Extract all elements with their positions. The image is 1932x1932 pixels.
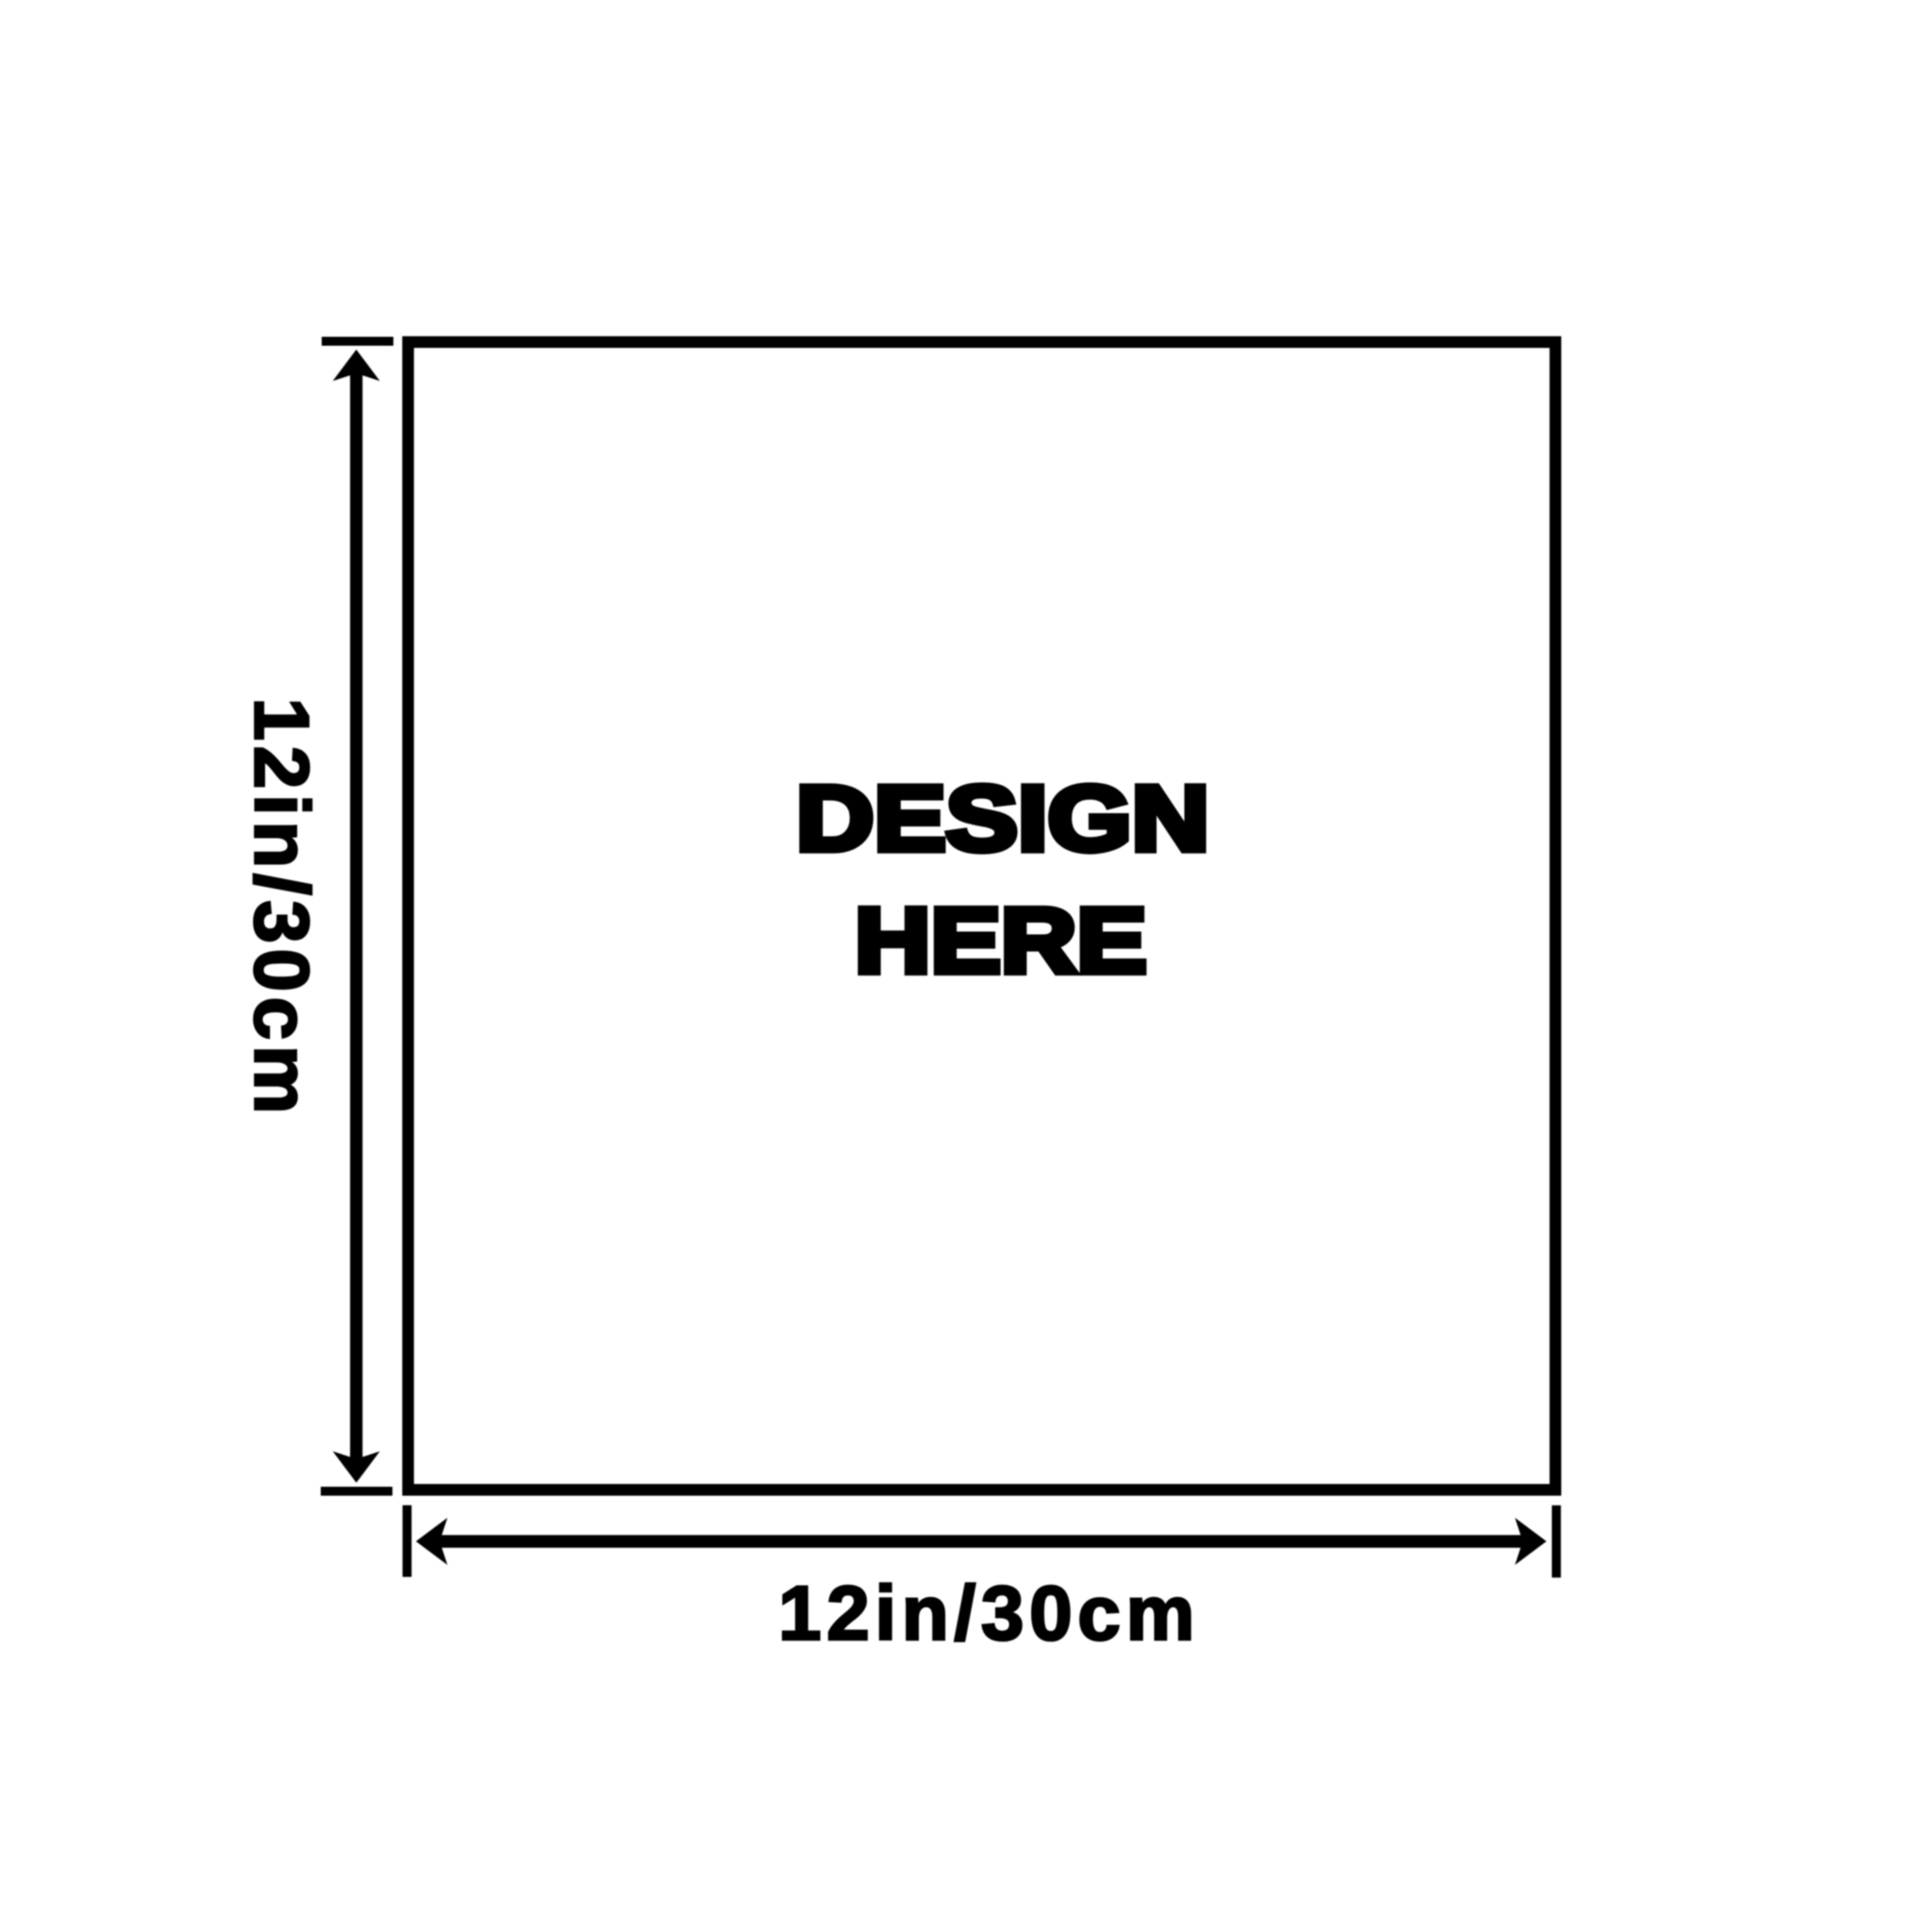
svg-text:DESIGN: DESIGN [796, 768, 1209, 870]
svg-text:12in/30cm: 12in/30cm [778, 1571, 1200, 1657]
svg-text:12in/30cm: 12in/30cm [238, 698, 324, 1120]
svg-text:HERE: HERE [855, 890, 1147, 992]
